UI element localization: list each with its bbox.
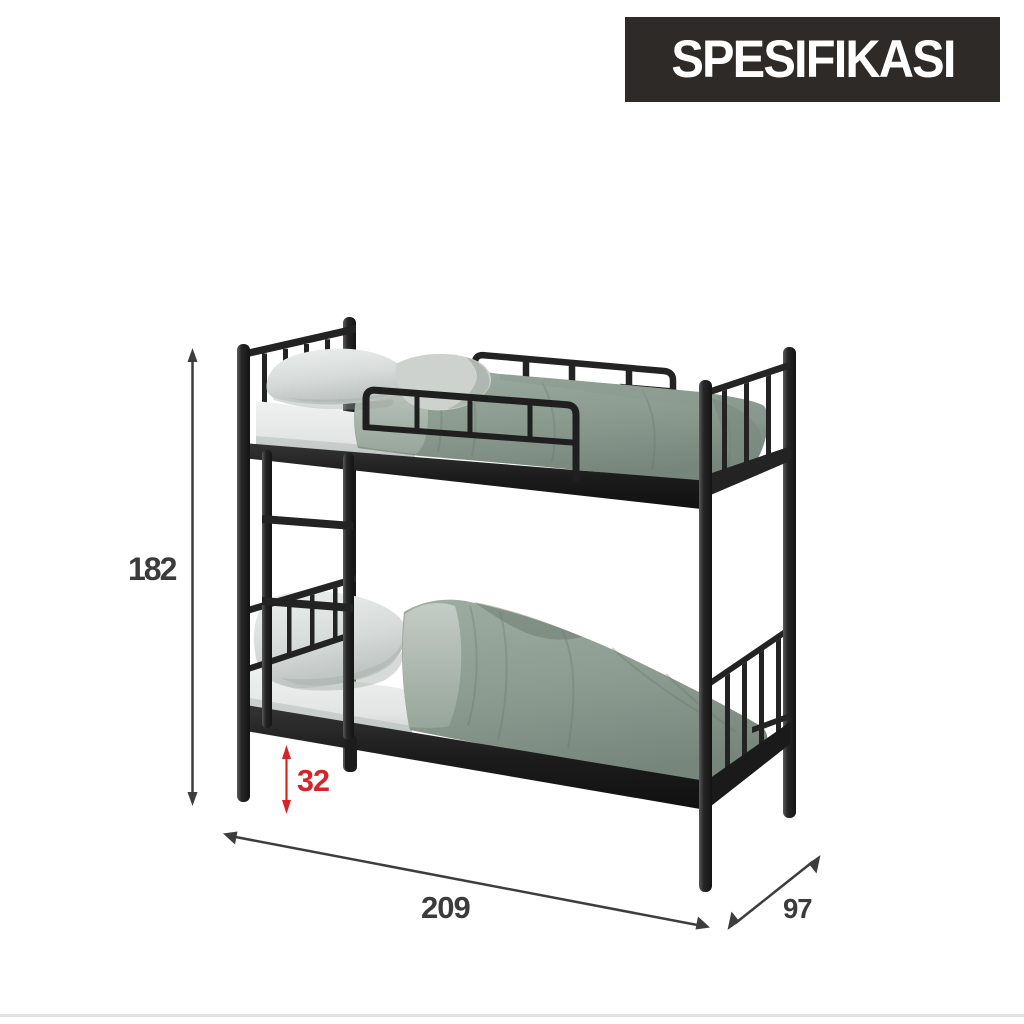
svg-text:209: 209 <box>421 890 470 925</box>
svg-text:32: 32 <box>297 764 329 798</box>
svg-text:97: 97 <box>783 893 812 924</box>
svg-text:182: 182 <box>128 551 177 587</box>
